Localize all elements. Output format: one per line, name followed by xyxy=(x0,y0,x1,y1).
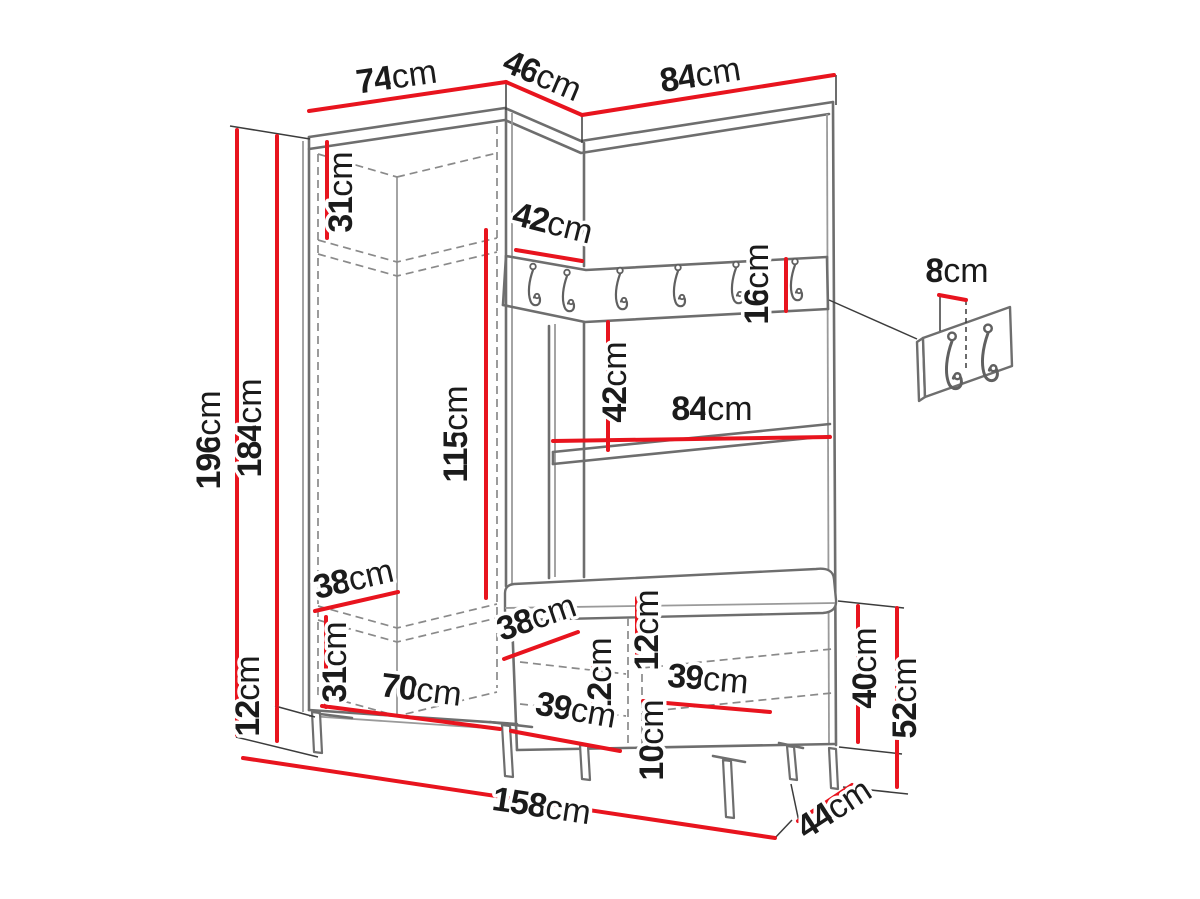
bench-front-left-leg xyxy=(723,760,734,818)
corner-leg xyxy=(580,745,590,780)
dim-label-leg-height: 12cm xyxy=(229,655,267,736)
dimension-diagram: 74cm 46cm 84cm 31cm 196cm 184cm 115cm 42… xyxy=(0,0,1200,899)
dim-label-shelf-width: 84cm xyxy=(671,390,752,428)
dim-label-seat-thickness: 12cm xyxy=(628,589,666,670)
dim-label-lower-compartment: 31cm xyxy=(316,621,354,702)
dim-label-hanging-height: 115cm xyxy=(437,385,475,482)
dim-label-below-rail: 42cm xyxy=(596,341,634,422)
wardrobe-left-leg xyxy=(312,712,322,753)
dim-label-rail-height: 16cm xyxy=(738,243,776,324)
dim-label-bench-cabinet-height: 40cm xyxy=(846,627,884,708)
dim-label-bench-total-height: 52cm xyxy=(886,657,924,738)
background xyxy=(0,0,1200,899)
unit-right-leg xyxy=(829,748,838,789)
dim-label-cabinet-height: 184cm xyxy=(231,378,269,477)
dim-label-bench-right-compartment: 39cm xyxy=(666,657,750,702)
dim-label-bench-lower-gap: 10cm xyxy=(633,699,671,780)
dim-label-upper-shelf-height: 31cm xyxy=(322,151,360,232)
rail-right-cap xyxy=(827,257,828,309)
dim-label-hook-spacing: 8cm xyxy=(925,252,988,290)
dim-label-total-height: 196cm xyxy=(190,390,228,489)
